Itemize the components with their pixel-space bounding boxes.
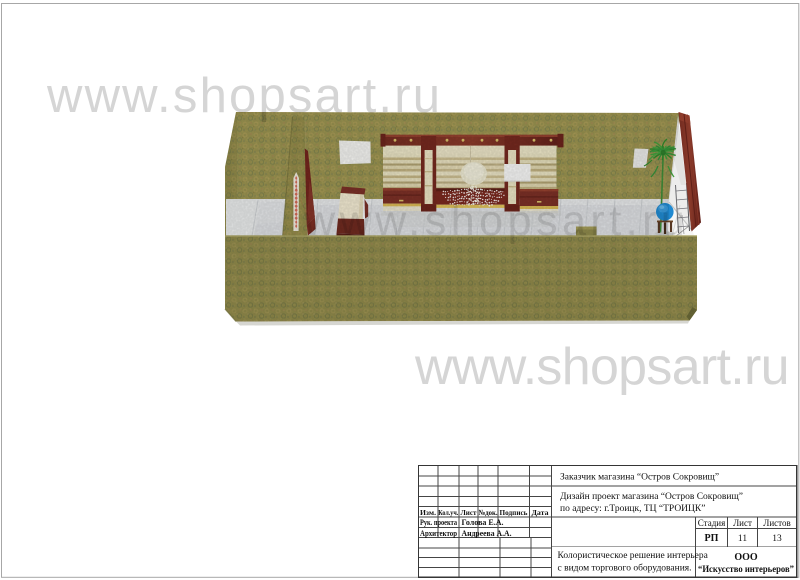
svg-text:www.shopsart.ru: www.shopsart.ru bbox=[303, 197, 689, 245]
svg-text:Кол.уч.: Кол.уч. bbox=[438, 508, 458, 517]
svg-text:Рук. проекта: Рук. проекта bbox=[420, 517, 458, 527]
svg-text:Голова Е.А.: Голова Е.А. bbox=[462, 517, 504, 527]
svg-text:Дата: Дата bbox=[532, 508, 549, 517]
svg-text:Листов: Листов bbox=[763, 518, 790, 528]
svg-text:www.shopsart.ru: www.shopsart.ru bbox=[414, 338, 789, 396]
svg-text:13: 13 bbox=[772, 534, 782, 544]
svg-text:с видом торгового оборудования: с видом торгового оборудования. bbox=[558, 563, 692, 574]
svg-text:Заказчик магазина “Остров Сокр: Заказчик магазина “Остров Сокровищ” bbox=[560, 473, 719, 483]
svg-text:Стадия: Стадия bbox=[698, 518, 725, 528]
svg-text:“Искусство интерьеров”: “Искусство интерьеров” bbox=[698, 564, 794, 575]
svg-text:11: 11 bbox=[738, 534, 747, 544]
svg-text:Лист: Лист bbox=[461, 508, 477, 517]
svg-text:Изм.: Изм. bbox=[420, 508, 436, 517]
svg-text:по адресу: г.Троицк, ТЦ “ТРОИЦ: по адресу: г.Троицк, ТЦ “ТРОИЦК” bbox=[560, 504, 705, 514]
svg-text:Дизайн проект магазина “Остров: Дизайн проект магазина “Остров Сокровищ” bbox=[560, 491, 743, 502]
svg-text:Архитектор: Архитектор bbox=[420, 528, 457, 538]
svg-text:www.shopsart.ru: www.shopsart.ru bbox=[46, 69, 442, 123]
svg-text:№док.: №док. bbox=[479, 508, 498, 517]
svg-text:РП: РП bbox=[705, 533, 719, 544]
svg-text:Колористическое решение интерь: Колористическое решение интерьера bbox=[558, 551, 709, 561]
svg-text:ООО: ООО bbox=[734, 552, 758, 563]
svg-text:Андреева А.А.: Андреева А.А. bbox=[462, 528, 512, 538]
svg-text:Лист: Лист bbox=[733, 518, 752, 528]
svg-text:Подпись: Подпись bbox=[500, 508, 528, 517]
